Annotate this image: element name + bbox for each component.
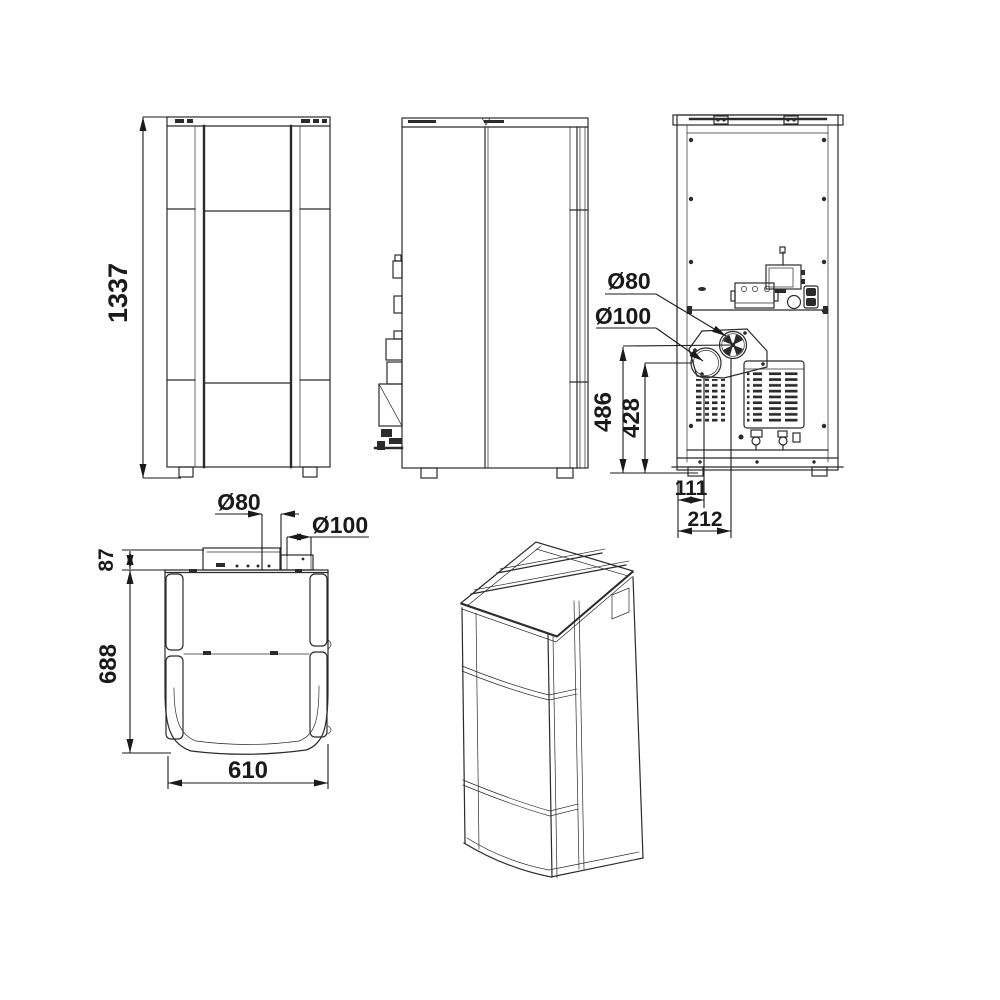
control-box [766, 247, 805, 293]
dim-top-air-inlet-diameter: Ø100 [287, 512, 369, 556]
iso-top-face [461, 542, 633, 642]
isometric-view [461, 542, 643, 878]
front-height-label: 1337 [103, 263, 133, 323]
dim-top-flue-diameter: Ø80 [215, 489, 299, 549]
air-inlet-box [281, 555, 313, 570]
svg-text:87: 87 [95, 548, 118, 571]
air-inlet-port [691, 348, 721, 378]
back-top-band [673, 115, 843, 125]
iso-body [462, 577, 643, 878]
svg-text:111: 111 [675, 477, 708, 500]
svg-text:Ø80: Ø80 [217, 489, 260, 515]
drawing-canvas: 1337 [0, 0, 1000, 1000]
dim-back-air-inlet-height: 428 [618, 363, 692, 473]
front-top-clips [175, 119, 327, 123]
front-feet [179, 467, 317, 477]
svg-text:610: 610 [228, 757, 268, 784]
side-feet [421, 468, 573, 478]
side-rear-fittings [375, 255, 402, 450]
flue-connection-plate [689, 329, 767, 378]
back-view [672, 115, 843, 476]
hydraulic-fittings [739, 430, 801, 450]
top-side-panels [166, 574, 327, 739]
side-vent [612, 588, 629, 619]
svg-text:688: 688 [95, 644, 122, 684]
power-socket [804, 286, 818, 308]
back-base [672, 450, 843, 476]
top-view [165, 548, 331, 754]
front-panel-inner [174, 686, 319, 745]
rear-connection-box [203, 548, 281, 570]
hinge-bump-lower [328, 726, 331, 734]
back-mid-rail [687, 306, 828, 314]
dim-back-flue-height: 486 [590, 345, 733, 473]
back-dims: Ø80 Ø100 486 428 111 212 [590, 268, 733, 538]
body-outline [165, 570, 328, 754]
svg-text:Ø80: Ø80 [607, 268, 650, 294]
svg-text:486: 486 [590, 392, 617, 432]
dim-top-body-depth: 688 [95, 570, 171, 753]
front-view [167, 117, 330, 477]
svg-text:428: 428 [618, 398, 645, 438]
dim-top-rear-depth: 87 [95, 548, 204, 571]
vent-slot [698, 287, 706, 291]
knob [788, 296, 801, 309]
dim-front-height: 1337 [103, 117, 181, 478]
svg-text:Ø100: Ø100 [595, 303, 651, 329]
technical-drawing: 1337 [0, 0, 1000, 1000]
svg-text:Ø100: Ø100 [312, 512, 368, 538]
side-view [375, 118, 588, 478]
back-left-grille [696, 379, 725, 423]
svg-text:212: 212 [687, 508, 722, 531]
